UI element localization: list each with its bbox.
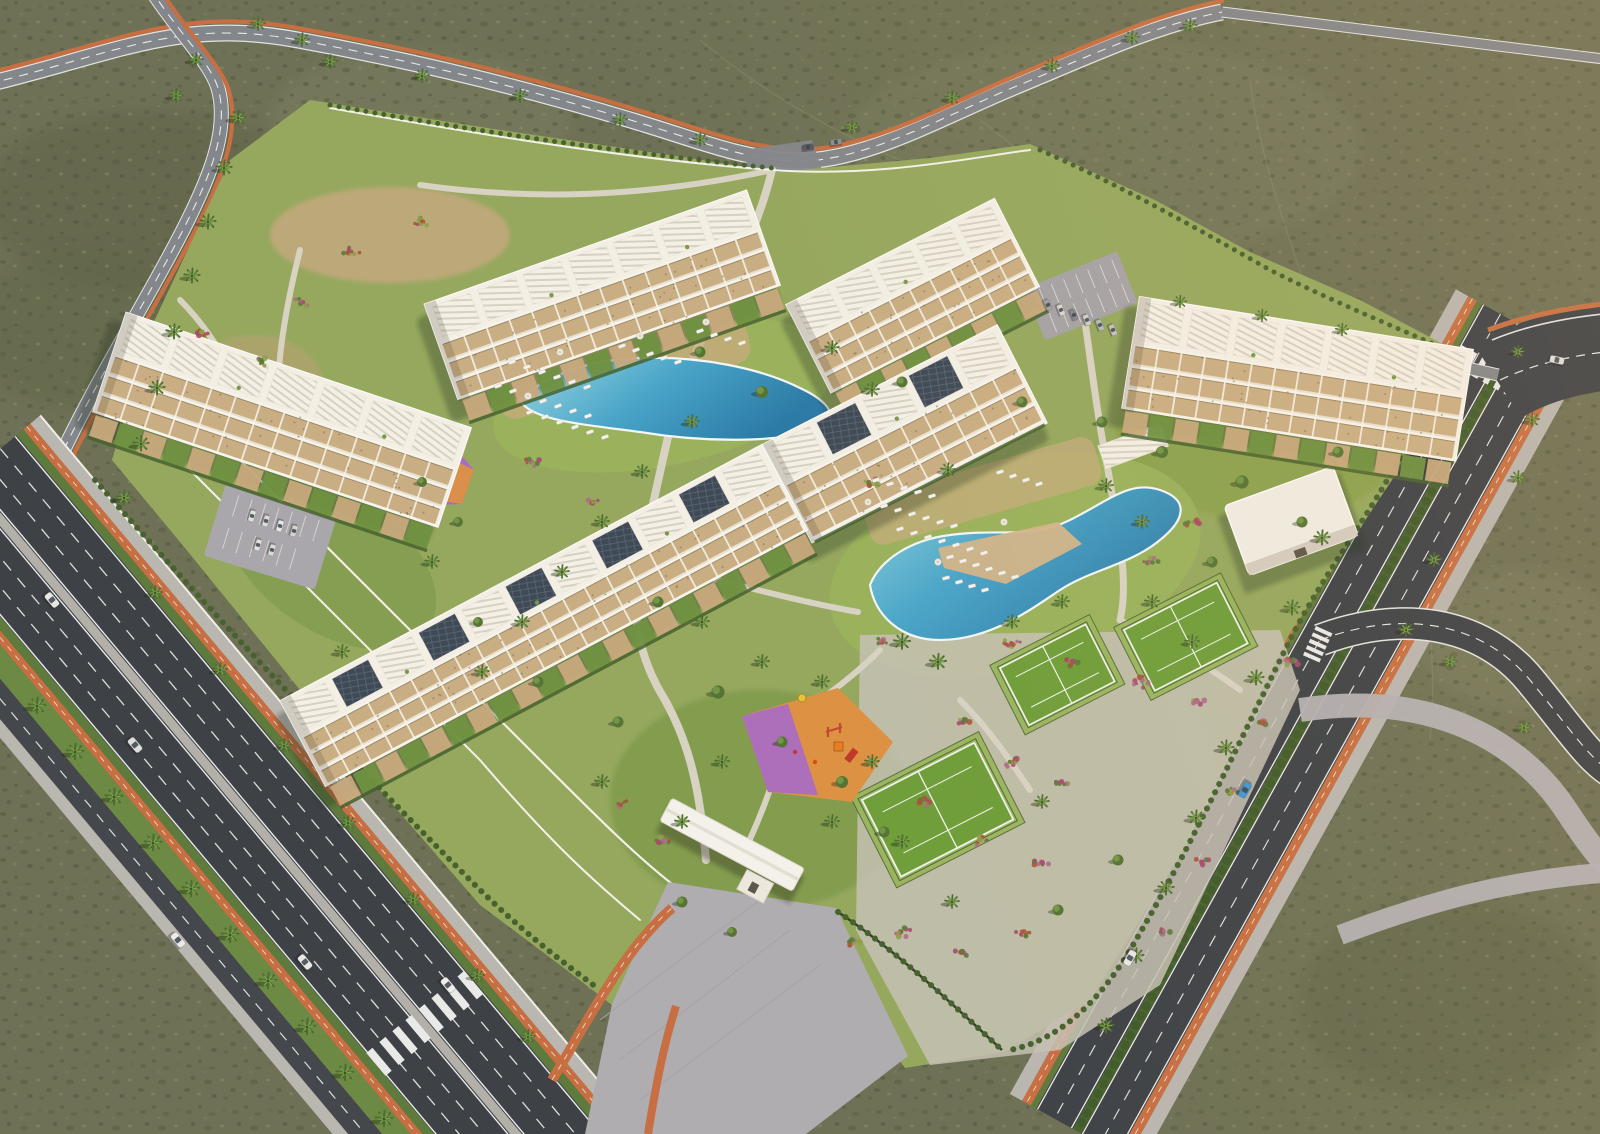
aerial-render-viewport (0, 0, 1600, 1134)
masterplan-aerial-scene (0, 0, 1600, 1134)
warm-light-overlay (0, 0, 1600, 1134)
